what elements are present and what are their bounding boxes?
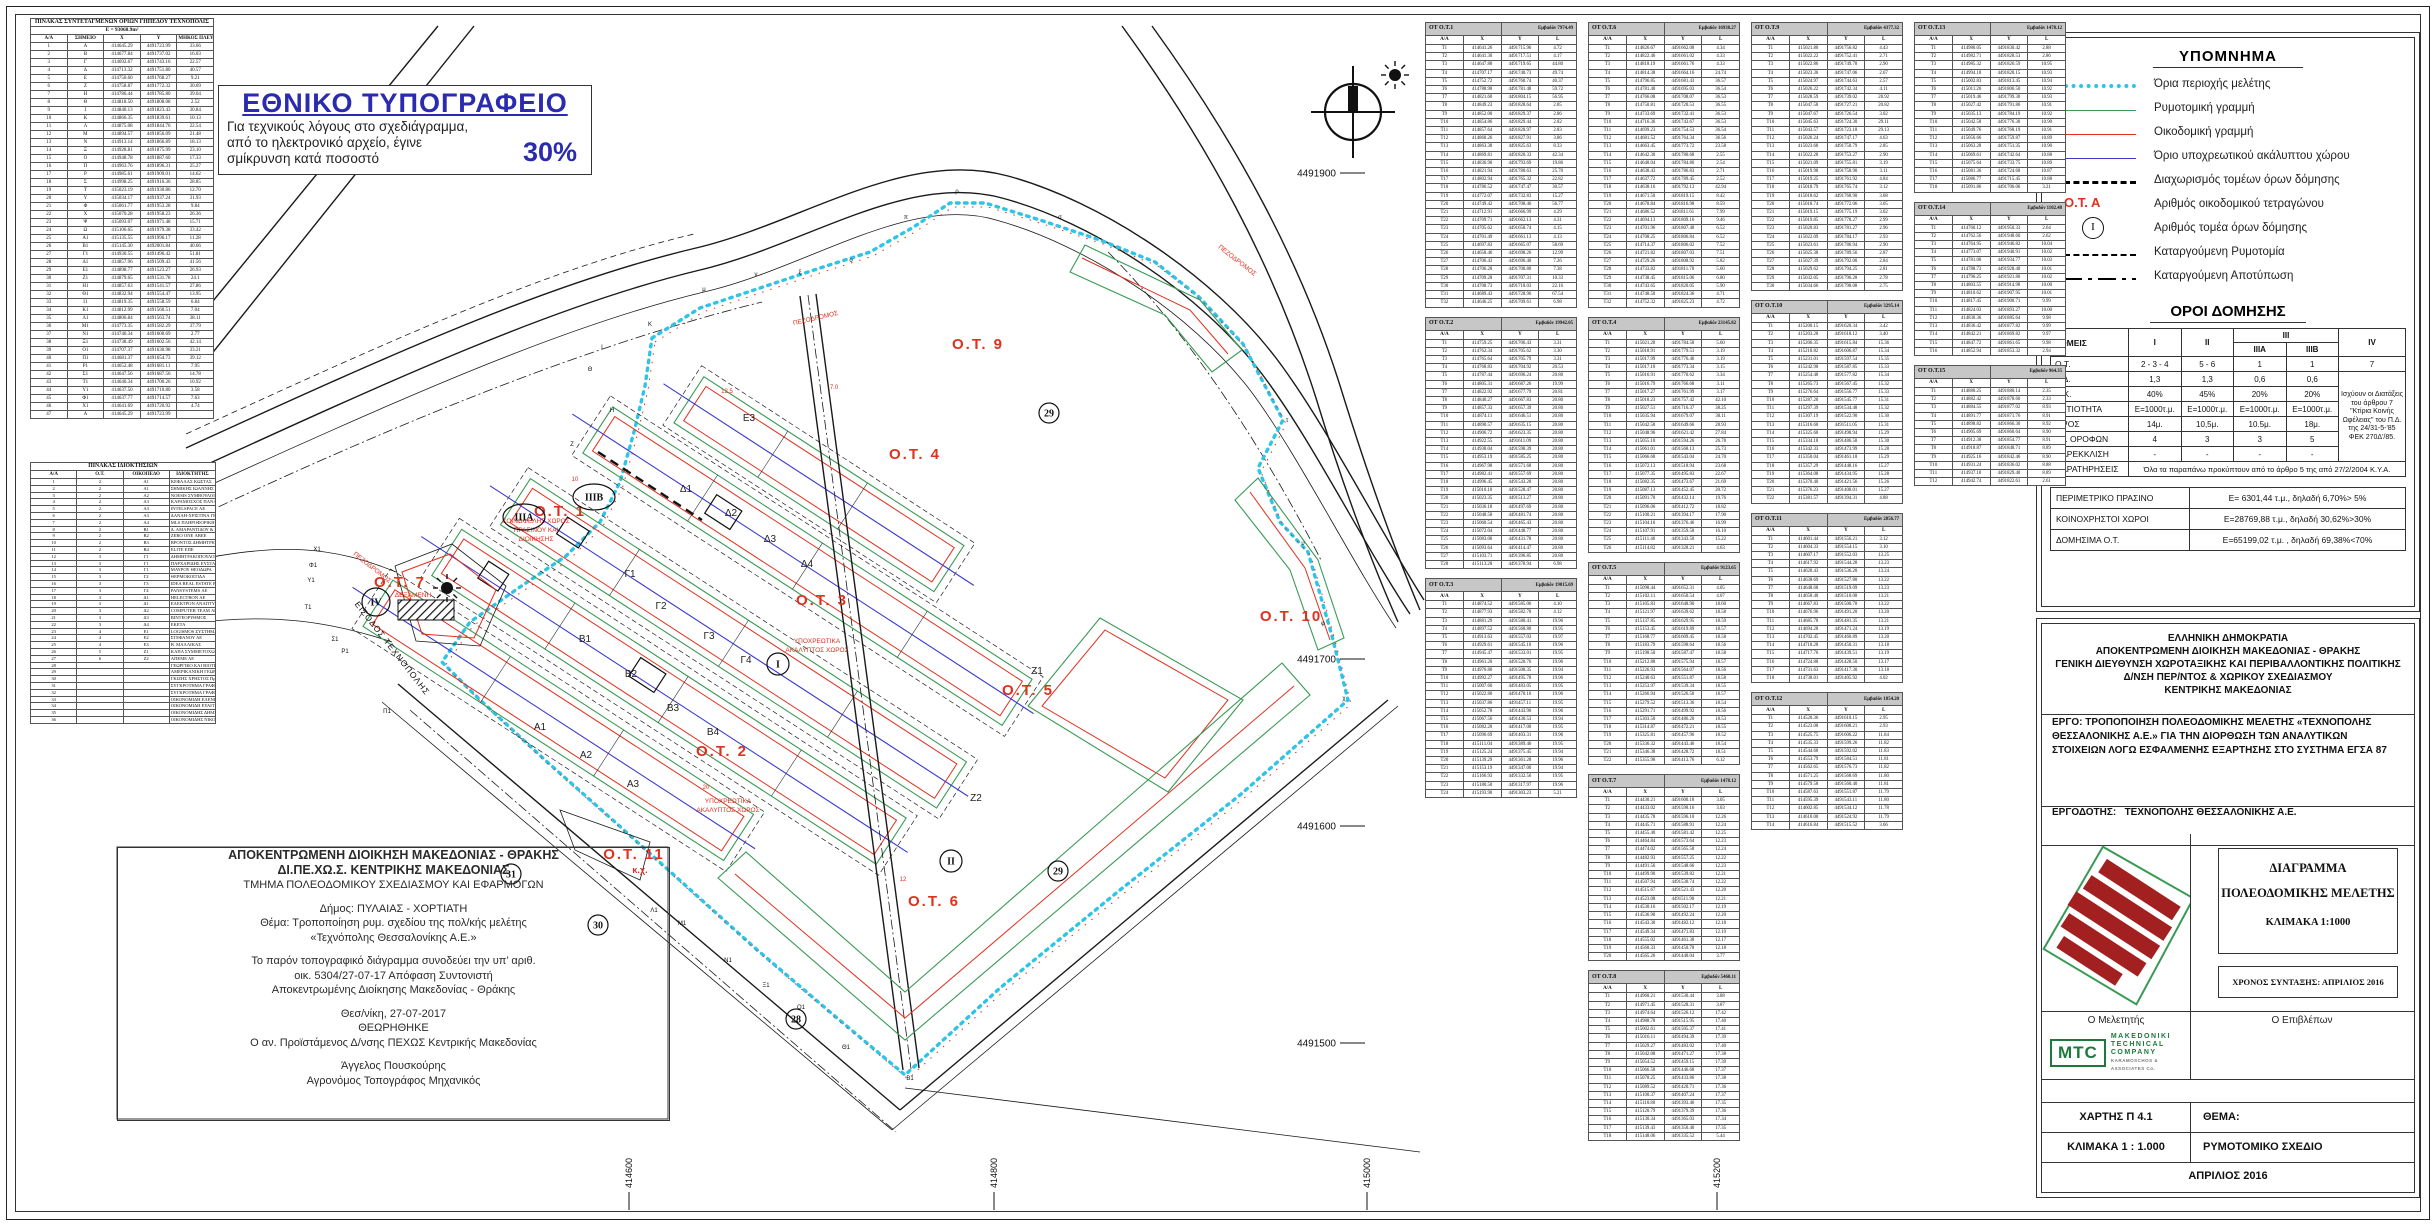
table-row: 2Β414677.844491737.0216.03	[31, 51, 214, 59]
signatures-section: Ο Μελετητής MTC MAKEDONIKI TECHNICAL COM…	[2042, 1011, 2414, 1080]
table-row: 92Β2ZERO ONE ΑΒΕΕ	[31, 533, 216, 540]
stamp-line: «Τεχνόπολης Θεσσαλονίκης Α.Ε.»	[118, 931, 669, 946]
map-label: Δ3	[764, 534, 777, 545]
boundary-coordinates-table: ΠΙΝΑΚΑΣ ΣΥΝΤΕΤΑΓΜΕΝΩΝ ΟΡΙΩΝ ΓΗΠΕΔΟΥ ΤΕΧΝ…	[30, 18, 214, 419]
grid-coordinate-label: 415000	[1362, 1158, 1372, 1188]
map-circle-label: ΙΙΙΒ	[585, 493, 604, 504]
table-row: 40Π1414681.374491654.7339.12	[31, 355, 214, 363]
table-row: 28ΓΕΩΡΓΙΚΟ ΚΑΙ ΒΙΟΤΕΧΝΙΚΟ ΙΝΣΤΙΤΟΥΤΟ ΘΕΣ…	[31, 662, 216, 669]
table-row: 36ΟΙΚΟΝΟΜΙΔΗΣ ΝΙΚΟΛΑΟΣ Γενναδίου 17 Πυλα…	[31, 716, 216, 723]
table-row: 5Ε414750.604491768.279.21	[31, 75, 214, 83]
table-row: ΠΕΡΙΜΕΤΡΙΚΟ ΠΡΑΣΙΝΟΕ= 6301,44 τ.μ., δηλα…	[2051, 488, 2406, 509]
stamp-line: ΔΙ.ΠΕ.ΧΩ.Σ. ΚΕΝΤΡΙΚΗΣ ΜΑΚΕΔΟΝΙΑΣ	[118, 863, 669, 878]
map-label: Β1	[906, 1076, 914, 1082]
map-label: μ	[702, 287, 706, 293]
stamp-line: ΘΕΩΡΗΘΗΚΕ	[118, 1021, 669, 1036]
date-row: ΑΠΡΙΛΙΟΣ 2016	[2042, 1162, 2414, 1190]
table-row: 3Γ414692.674491743.1622.57	[31, 59, 214, 67]
map-label: ΠΕΖΟΔΡΟΜΟΣ	[1217, 244, 1258, 278]
map-label: Α2	[580, 750, 593, 761]
table-row: 43Τ1414640.344491700.2610.92	[31, 379, 214, 387]
legend-item: ΙΑριθμός τομέα όρων δόμησης	[2042, 219, 2414, 243]
map-label: Σ1	[331, 637, 339, 643]
table-row: 12Μ414894.574491856.0921.48	[31, 131, 214, 139]
table-row: 21Φ415061.774491953.289.84	[31, 203, 214, 211]
table-row: 223Δ4ΕΚΕΤΑ	[31, 621, 216, 628]
map-label: Β1	[579, 634, 592, 645]
owners-table-title: ΠΙΝΑΚΑΣ ΙΔΙΟΚΤΗΣΙΩΝ	[31, 463, 216, 471]
map-label: Δ4	[801, 559, 814, 570]
table-row: 29Ε1414898.774491523.2726.93	[31, 267, 214, 275]
table-row: 11Λ414875.084491844.7622.54	[31, 123, 214, 131]
table-row: ΚΟΙΝΟΧΡΗΣΤΟΙ ΧΩΡΟΙΕ=28769,88 τ.μ., δηλαδ…	[2051, 509, 2406, 530]
legend-items: Όρια περιοχής μελέτηςΡυμοτομική γραμμήΟι…	[2042, 75, 2414, 291]
blank-row	[2042, 1079, 2414, 1103]
table-row: 22Χ415070.284491958.2326.36	[31, 211, 214, 219]
table-row: 183Δ1HELECTRON ΑΕ	[31, 594, 216, 601]
table-row: 6Ζ414758.874491772.3230.69	[31, 83, 214, 91]
stamp-line: Θεσ/νίκη, 27-07-2017	[118, 1007, 669, 1022]
map-label: Β4	[707, 727, 720, 738]
grid-coordinate-label: 414800	[989, 1158, 999, 1188]
ot-3-label: Ο.Τ. 3	[796, 592, 848, 609]
stamp-line: Άγγελος Πουσκούρης	[118, 1059, 669, 1074]
ownership-table: ΠΙΝΑΚΑΣ ΙΔΙΟΚΤΗΣΙΩΝ Α/Α Ο.Τ. ΟΙΚΟΠΕΔΟ ΙΔ…	[30, 462, 216, 724]
legend-item: Όριο υποχρεωτικού ακάλυπτου χώρου	[2042, 147, 2414, 171]
map-label: ΚΟΙΝΩΦΕΛΗΣ ΧΩΡΟΣ	[502, 518, 570, 525]
legend-item-label: Όριο υποχρεωτικού ακάλυπτου χώρου	[2154, 150, 2350, 162]
table-row: 102Β3ΒΡΟΝΤΟΣ ΔΗΜΗΤΡΙΟΣ	[31, 540, 216, 547]
main-internal-street	[800, 294, 919, 1070]
map-label: Ε3	[743, 413, 756, 424]
ot-10-label: Ο.Τ. 10	[1260, 608, 1322, 625]
table-row: 153Γ2ΘΕΡΜΟΚΟΙΤΙΔΑ	[31, 574, 216, 581]
map-label: Α3	[627, 779, 640, 790]
legend-item-label: Καταργούμενη Αποτύπωση	[2154, 270, 2293, 282]
table-row: 46Χ1414641.694491720.924.74	[31, 403, 214, 411]
map-label: ΔΙΟΙΚΗΣΗΣ	[519, 536, 554, 543]
legend-item: Καταργούμενη Αποτύπωση	[2042, 267, 2414, 291]
supervisor-cell: Ο Επιβλέπων	[2190, 1011, 2414, 1026]
map-label: Μ1	[678, 921, 687, 927]
map-circle-label: 29	[1053, 867, 1063, 878]
grid-coordinate-label: 4491600	[1297, 822, 1336, 833]
table-row: 27Γ1414930.554491496.4251.81	[31, 251, 214, 259]
building-terms-title: ΟΡΟΙ ΔΟΜΗΣΗΣ	[2042, 303, 2414, 320]
table-row: 35Λ1414806.844491563.7438.11	[31, 315, 214, 323]
table-row: 52Α3INTELSPACE ΑΕ	[31, 506, 216, 513]
dash-symbol-icon	[2064, 254, 2136, 256]
map-circle-label: 28	[791, 1015, 801, 1026]
table-row: 32Θ1414832.944491554.4713.95	[31, 291, 214, 299]
legend-item-label: Αριθμός τομέα όρων δόμησης	[2154, 222, 2307, 234]
table-row: 16Π414963.764491896.3125.27	[31, 163, 214, 171]
title-block-inner: ΕΛΛΗΝΙΚΗ ΔΗΜΟΚΡΑΤΙΑ ΑΠΟΚΕΝΤΡΩΜΕΝΗ ΔΙΟΙΚΗ…	[2041, 623, 2415, 1193]
drawing-sheet: Ο.Τ. 1Ο.Τ. 2Ο.Τ. 3Ο.Τ. 4Ο.Τ. 5Ο.Τ. 6Ο.Τ.…	[0, 0, 2436, 1226]
map-label: Φ1	[309, 563, 318, 569]
national-printing-office-notice: ΕΘΝΙΚΟ ΤΥΠΟΓΡΑΦΕΙΟ Για τεχνικούς λόγους …	[218, 85, 592, 175]
project-title: ΕΡΓΟ: ΤΡΟΠΟΠΟΙΗΣΗ ΠΟΛΕΟΔΟΜΙΚΗΣ ΜΕΛΕΤΗΣ «…	[2042, 706, 2414, 807]
map-label: Ρ1	[341, 649, 349, 655]
notice-line: Για τεχνικούς λόγους στο σχεδιάγραμμα,	[227, 119, 591, 135]
table-row: 19Τ415023.194491930.8612.70	[31, 187, 214, 195]
map-label: Θ	[588, 367, 593, 373]
table-row: 20Υ415034.174491937.2431.93	[31, 195, 214, 203]
supervisor-label: Ο Επιβλέπων	[2190, 1011, 2414, 1026]
table-row: 7Η414786.444491785.8039.04	[31, 91, 214, 99]
table-row: 244Ε2ΣΤΕΦΑΝΟΥ ΑΕ	[31, 635, 216, 642]
table-row: 173Γ4PANSYSTEMS ΑΕ	[31, 587, 216, 594]
ot-5-label: Ο.Τ. 5	[1002, 682, 1054, 699]
table-row: 17Ρ414985.614491909.0114.62	[31, 171, 214, 179]
legend-title: ΥΠΟΜΝΗΜΑ	[2042, 48, 2414, 65]
chart-number: ΧΑΡΤΗΣ Π 4.1	[2042, 1102, 2191, 1132]
map-label: Γ1	[624, 569, 636, 580]
notice-title: ΕΘΝΙΚΟ ΤΥΠΟΓΡΑΦΕΙΟ	[219, 88, 591, 119]
notice-percentage: 30%	[523, 137, 577, 168]
table-row: 47Α414645.294491723.99	[31, 411, 214, 419]
table-row: 1Α414645.294491723.9933.66	[31, 43, 214, 51]
circ-symbol-icon: Ι	[2082, 217, 2104, 239]
map-circle-label: 29	[1044, 409, 1054, 420]
table-row: ΔΟΜΗΣΙΜΑ Ο.Τ.Ε=65199,02 τ.μ. , δηλαδή 69…	[2051, 530, 2406, 551]
table-row: 9Ι414840.134491823.4330.84	[31, 107, 214, 115]
table-row: 38Ξ1414738.494491602.5642.14	[31, 339, 214, 347]
legend-item: Οικοδομική γραμμή	[2042, 123, 2414, 147]
map-label: ΠΕΖΟΔΡΟΜΟΣ	[792, 310, 839, 327]
map-label: Β3	[667, 703, 680, 714]
map-label: Ι	[601, 345, 603, 351]
stamp-line: Αποκεντρωμένης Διοίκησης Μακεδονίας - Θρ…	[118, 983, 669, 998]
building-terms-header: ΤΟΜΕΙΣ Ι ΙΙ ΙΙΙ ΙV	[2051, 329, 2406, 343]
table-row: 24Ω415106.654491979.3833.42	[31, 227, 214, 235]
map-label: Κ	[648, 322, 652, 328]
site-thumbnail-cell	[2042, 834, 2191, 1011]
map-label: 12.5	[721, 389, 733, 395]
table-row: 34Κ1414812.994491560.517.04	[31, 307, 214, 315]
stamp-line: ΑΠΟΚΕΝΤΡΩΜΕΝΗ ΔΙΟΙΚΗΣΗ ΜΑΚΕΔΟΝΙΑΣ - ΘΡΑΚ…	[118, 848, 669, 863]
table-row: 193Δ1ΕΛΕΚΤΡΟΝ ΑΝΑΠΤΥΞΙΑΚΗ ΑΕ	[31, 601, 216, 608]
table-row: 82Β1Δ. ΑΜΑΡΑΝΤΙΔΟΥ & ΣΙΑ ΕΕ	[31, 526, 216, 533]
table-row: 14Ξ414928.814491875.9923.10	[31, 147, 214, 155]
approval-stamp: ΑΠΟΚΕΝΤΡΩΜΕΝΗ ΔΙΟΙΚΗΣΗ ΜΑΚΕΔΟΝΙΑΣ - ΘΡΑΚ…	[117, 847, 670, 1121]
stamp-line	[118, 1050, 669, 1059]
map-label: Α1	[534, 722, 547, 733]
table-row: 23Ψ415093.074491971.4815.71	[31, 219, 214, 227]
table-row: 276Ζ2ΑΠΕΜΕ ΑΕ	[31, 655, 216, 662]
table-row: 13Ν414913.144491866.8918.13	[31, 139, 214, 147]
block-ot6	[718, 663, 1310, 1040]
map-label: φ	[1321, 621, 1325, 627]
map-label: Γ4	[740, 655, 752, 666]
map-label: Π1	[383, 709, 391, 715]
map-label: Υ1	[307, 578, 315, 584]
table-row: 123Γ1ΔΗΜΗΤΡΑΚΟΠΟΥΛΟΣ ΚΩΝ/ΝΟΣ	[31, 553, 216, 560]
table-row: 26Β1415145.304492001.8440.66	[31, 243, 214, 251]
stamp-line: Ο αν. Προϊστάμενος Δ/νσης ΠΕΧΩΣ Κεντρική…	[118, 1036, 669, 1051]
map-label: 20	[703, 785, 710, 791]
legend-item: Καταργούμενη Ρυμοτομία	[2042, 243, 2414, 267]
agency-header: ΕΛΛΗΝΙΚΗ ΔΗΜΟΚΡΑΤΙΑ ΑΠΟΚΕΝΤΡΩΜΕΝΗ ΔΙΟΙΚΗ…	[2042, 624, 2414, 715]
table-row: 33ΟΙΚΟΝΟΜΙΔΗ ΕΛΕΝΗ Γενναδίου 17 Πυλαία	[31, 696, 216, 703]
table-row: 22Α1ΣΗΜΙΚΗΣ ΙΩΑΝΝΗΣ	[31, 485, 216, 492]
table-row: 41Ρ1414652.484491681.117.95	[31, 363, 214, 371]
map-label: Τ1	[304, 605, 312, 611]
table-row: 203Δ2COMPUTER TEAM ΑΕΒΕ	[31, 608, 216, 615]
map-label: Ζ1	[1031, 666, 1043, 677]
legend-panel-inner: ΥΠΟΜΝΗΜΑ Όρια περιοχής μελέτηςΡυμοτομική…	[2041, 37, 2415, 607]
table-row: 30Ζ1414879.654491531.7824.1	[31, 275, 214, 283]
coords-table-area: Ε = 93068.9m²	[31, 27, 214, 35]
table-row: 265Ζ1ΚΑΠΑ ΣΥΜΜΕΤΟΧΩΝ ΑΕ	[31, 648, 216, 655]
table-row: Σ.Δ.1,31,30,60,6Ισχύουν οι Διατάξεις του…	[2051, 372, 2406, 387]
map-label: ΑΚΑΛΥΠΤΟΣ ΧΩΡΟΣ	[785, 647, 848, 654]
table-row: 62Α3ΔΑΝΑΗ-ΧΡΙΣΤΙΝΑ ΓΕΩΡΓΟΠΟΥΛΟΥ	[31, 512, 216, 519]
area-totals-table: ΠΕΡΙΜΕΤΡΙΚΟ ΠΡΑΣΙΝΟΕ= 6301,44 τ.μ., δηλα…	[2050, 487, 2406, 551]
map-label: Γ2	[655, 601, 667, 612]
map-label: ν	[755, 272, 758, 278]
stamp-line	[118, 998, 669, 1007]
map-label: Χ1	[313, 547, 321, 553]
map-label: Ζ	[570, 442, 574, 448]
ot-6-label: Ο.Τ. 6	[908, 893, 960, 910]
legend-item-label: Οικοδομική γραμμή	[2154, 126, 2253, 138]
map-label: υ	[1301, 541, 1304, 547]
map-label: Θ1	[842, 1045, 851, 1051]
table-row: 45Φ1414637.774491714.577.63	[31, 395, 214, 403]
block-ot5	[1028, 618, 1243, 792]
table-row: 42Α3ΚΑΡΑΜΟΣΧΟΣ ΠΑΝΑΓΙΩΤΗΣ	[31, 499, 216, 506]
table-row: 39Ο1414707.374491630.9833.21	[31, 347, 214, 355]
grid-coordinate-label: 414600	[624, 1158, 634, 1188]
coords-table-title: ΠΙΝΑΚΑΣ ΣΥΝΤΕΤΑΓΜΕΝΩΝ ΟΡΙΩΝ ΓΗΠΕΔΟΥ ΤΕΧΝ…	[31, 19, 214, 27]
red-symbol-icon	[2064, 134, 2136, 135]
stamp-line: Το παρόν τοπογραφικό διάγραμμα συνοδεύει…	[118, 954, 669, 969]
stamp-line: οικ. 5304/27-07-17 Απόφαση Συντονιστή	[118, 969, 669, 984]
map-label: Ξ1	[762, 983, 770, 989]
table-row: 29ΑΜΕΡΙΚΑΝΙΚΗ ΓΕΩΡΓΙΚΗ ΣΧΟΛΗ	[31, 669, 216, 676]
sector-symbol-icon	[2064, 181, 2136, 184]
table-row: ΠΑΡΑΤΗΡΗΣΕΙΣΌλα τα παραπάνω προκύπτουν α…	[2051, 462, 2406, 477]
title-block: ΕΛΛΗΝΙΚΗ ΔΗΜΟΚΡΑΤΙΑ ΑΠΟΚΕΝΤΡΩΜΕΝΗ ΔΙΟΙΚΗ…	[2036, 618, 2420, 1198]
map-label: Δ1	[680, 484, 693, 495]
map-label: ΥΠΟΧΡΕΩΤΙΚΑ	[705, 798, 752, 805]
boundary-symbol-icon	[2064, 84, 2136, 88]
stamp-line: Αγρονόμος Τοπογράφος Μηχανικός	[118, 1074, 669, 1089]
ot-4-label: Ο.Τ. 4	[889, 446, 941, 463]
project-label: ΕΡΓΟ:	[2052, 717, 2082, 728]
table-row: 8Θ414818.504491808.082.52	[31, 99, 214, 107]
legend-item-label: Καταργούμενη Ρυμοτομία	[2154, 246, 2285, 258]
map-circle-label: ΙΙΙΑ	[515, 513, 535, 524]
map-label: 10	[572, 477, 579, 483]
table-row: 30ΓΚΙΖΗΣ ΧΡΗΣΤΟΣ Προσοτσάνης 11 Πυλαία Γ…	[31, 676, 216, 683]
map-label: ΔΕΞΑΜΕΝΗ	[395, 592, 432, 599]
owners-table-header: Α/Α Ο.Τ. ΟΙΚΟΠΕΔΟ ΙΔΙΟΚΤΗΤΗΣ	[31, 471, 216, 479]
thema-value: ΡΥΜΟΤΟΜΙΚΟ ΣΧΕΔΙΟ	[2191, 1132, 2414, 1162]
map-circle-label: Ι	[776, 660, 780, 671]
mtc-abbr: MTC	[2050, 1039, 2106, 1067]
date-value: ΑΠΡΙΛΙΟΣ 2016	[2042, 1162, 2414, 1190]
legend-item-label: Διαχωρισμός τομέων όρων δόμησης	[2154, 174, 2340, 186]
legend-item-label: Αριθμός οικοδομικού τετραγώνου	[2154, 198, 2324, 210]
map-label: Γ3	[703, 631, 715, 642]
table-row: 44Υ1414637.504491710.803.58	[31, 387, 214, 395]
map-label: ΑΚΑΛΥΠΤΟΣ ΧΩΡΟΣ	[696, 807, 759, 814]
diagram-title-box: ΔΙΑΓΡΑΜΜΑ ΠΟΛΕΟΔΟΜΙΚΗΣ ΜΕΛΕΤΗΣ ΚΛΙΜΑΚΑ 1…	[2218, 848, 2398, 954]
grid-coordinate-label: 4491500	[1297, 1039, 1336, 1050]
legend-panel: ΥΠΟΜΝΗΜΑ Όρια περιοχής μελέτηςΡυμοτομική…	[2036, 32, 2420, 612]
table-row: 31ΣΥΓΚΡΟΤΗΜΑ ΓΡΑΦΕΙΩΝ 9ο χλμ Θεσ/νίκης-Θ…	[31, 682, 216, 689]
table-row: 33Ι1414819.354491558.596.84	[31, 299, 214, 307]
blue-symbol-icon	[2064, 158, 2136, 159]
chart-number-row: ΧΑΡΤΗΣ Π 4.1 ΘΕΜΑ:	[2042, 1102, 2414, 1133]
table-row: 31Η1414857.634491541.5727.86	[31, 283, 214, 291]
table-row: 18Σ414998.254491916.3628.85	[31, 179, 214, 187]
ot-9-label: Ο.Τ. 9	[952, 336, 1004, 353]
diagram-section: ΔΙΑΓΡΑΜΜΑ ΠΟΛΕΟΔΟΜΙΚΗΣ ΜΕΛΕΤΗΣ ΚΛΙΜΑΚΑ 1…	[2042, 834, 2414, 1012]
table-row: 25Α1415135.554491996.1711.28	[31, 235, 214, 243]
map-label: ΥΠΟΧΡΕΩΤΙΚΑ	[794, 638, 841, 645]
table-row: 35ΟΙΚΟΝΟΜΙΔΗΣ ΔΗΜΗΤΡΙΟΣ Γενναδίου 17 Πυλ…	[31, 710, 216, 717]
dashdot-symbol-icon	[2064, 278, 2136, 280]
grid-coordinate-label: 4491700	[1297, 655, 1336, 666]
stamp-line	[118, 893, 669, 902]
designer-cell: Ο Μελετητής MTC MAKEDONIKI TECHNICAL COM…	[2042, 1011, 2191, 1079]
client-label: ΕΡΓΟΔΟΤΗΣ:	[2052, 807, 2116, 818]
map-label: 7.0	[830, 385, 839, 391]
table-row: 12Α1ΚΕΦΑΛΑΣ ΚΩΣΤΑΣ	[31, 479, 216, 486]
legend-item: Ρυμοτομική γραμμή	[2042, 99, 2414, 123]
legend-item-label: Ρυμοτομική γραμμή	[2154, 102, 2255, 114]
table-row: 4Δ414713.324491751.8040.57	[31, 67, 214, 75]
map-label: Η	[610, 408, 614, 414]
legend-item: Διαχωρισμός τομέων όρων δόμησης	[2042, 171, 2414, 195]
legend-item: Όρια περιοχής μελέτης	[2042, 75, 2414, 99]
north-compass-icon	[1311, 66, 1395, 158]
notice-line: σμίκρυνση κατά ποσοστό	[227, 151, 457, 167]
legend-item-label: Όρια περιοχής μελέτης	[2154, 78, 2270, 90]
scale-value: ΚΛΙΜΑΚΑ 1 : 1.000	[2042, 1132, 2191, 1162]
table-row: 32ΣΥΓΚΡΟΤΗΜΑ ΓΡΑΦΕΙΩΝ "THERMI" 9ο χλμ Θε…	[31, 689, 216, 696]
thema-label: ΘΕΜΑ:	[2191, 1102, 2414, 1132]
drafting-date-box: ΧΡΟΝΟΣ ΣΥΝΤΑΞΗΣ: ΑΠΡΙΛΙΟΣ 2016	[2218, 966, 2398, 998]
map-label: ξ	[799, 270, 802, 276]
map-label: Β2	[625, 669, 638, 680]
map-label: ρ	[955, 189, 959, 195]
ot-symbol-icon: Ο.Τ. Α	[2064, 195, 2136, 203]
table-row: 133Γ1ΠΑΡΧΑΡΙΔΗΣ ΕΥΣΤΑΘΙΟΣ	[31, 560, 216, 567]
table-row: 42Σ1414647.564491687.5614.78	[31, 371, 214, 379]
grid-coordinate-label: 4491900	[1297, 169, 1336, 180]
table-row: 10Κ414866.354491839.6110.13	[31, 115, 214, 123]
table-row: 28Δ1414857.964491509.4341.56	[31, 259, 214, 267]
legend-item: Ο.Τ. ΑΑριθμός οικοδομικού τετραγώνου	[2042, 195, 2414, 219]
map-label: Ν1	[724, 958, 732, 964]
coords-table-header: Α/Α ΣΗΜΕΙΟ Χ Υ ΜΗΚΟΣ ΠΛΕΥΡΑΣ (m)	[31, 35, 214, 43]
table-row: 254Ε3Β. ΜΑΛΛΙΚΑΣ	[31, 642, 216, 649]
map-label: τ	[1286, 418, 1289, 424]
stamp-line: ΤΜΗΜΑ ΠΟΛΕΟΔΟΜΙΚΟΥ ΣΧΕΔΙΑΣΜΟΥ ΚΑΙ ΕΦΑΡΜΟ…	[118, 878, 669, 893]
table-row: 36Μ1414773.354491582.2937.79	[31, 323, 214, 331]
table-row: 234Ε1LOGISMOS ΣΥΣΤΗΜΑΤΑ ΠΛΗΡΟΦΟΡΙΚΗΣ ΑΕ	[31, 628, 216, 635]
designer-label: Ο Μελετητής	[2042, 1011, 2190, 1026]
table-row: 213Δ3ΒΙΝΤΕΟΡΥΘΜΟΣ	[31, 614, 216, 621]
table-row: 37Ν1414740.344491600.692.77	[31, 331, 214, 339]
project-text: ΤΡΟΠΟΠΟΙΗΣΗ ΠΟΛΕΟΔΟΜΙΚΗΣ ΜΕΛΕΤΗΣ «ΤΕΧΝΟΠ…	[2052, 717, 2387, 756]
table-row: 112Β4ELITE ΕΠΕ	[31, 546, 216, 553]
tank-hatch	[398, 600, 454, 620]
table-row: 72Α4MLS ΠΛΗΡΟΦΟΡΙΚΗ ΑΕ	[31, 519, 216, 526]
ot-2-label: Ο.Τ. 2	[696, 743, 748, 760]
map-label: Ζ2	[970, 793, 982, 804]
table-row: 32Α2NOESIS ΣΥΜΒΟΥΛΟΙ ΑΝΑΠΤΥΞΗΣ ΑΕ	[31, 492, 216, 499]
mtc-logo: MTC MAKEDONIKI TECHNICAL COMPANY KARAMOS…	[2050, 1033, 2190, 1073]
map-label: Δ2	[725, 508, 738, 519]
stamp-line	[118, 945, 669, 954]
map-label: σ	[1058, 215, 1062, 221]
map-label: 12	[900, 877, 907, 883]
map-circle-label: ΙV	[370, 598, 382, 609]
stamp-line: Δήμος: ΠΥΛΑΙΑΣ - ΧΟΡΤΙΑΤΗ	[118, 902, 669, 917]
site-thumbnail-logo	[2042, 834, 2190, 1011]
building-terms-table: ΤΟΜΕΙΣ Ι ΙΙ ΙΙΙ ΙV ΙΙΙΑΙΙΙΒ Ο.Τ.2 - 3 - …	[2050, 328, 2406, 477]
map-label: π	[904, 215, 908, 221]
table-row: 163Γ3IDEA REAL ESTATE ΕΠΕ	[31, 580, 216, 587]
map-label: χ	[1342, 696, 1346, 702]
map-circle-label: ΙΙ	[947, 857, 955, 868]
table-row: 15Ο414948.784491887.6017.33	[31, 155, 214, 163]
table-row: Ο.Τ.2 - 3 - 45 - 6117	[2051, 357, 2406, 372]
green-symbol-icon	[2064, 110, 2136, 111]
table-row: 143Γ1ΜΑΥΡΟΥ ΘΕΟΔΩΡΑ	[31, 567, 216, 574]
table-row: 34ΟΙΚΟΝΟΜΙΔΗ ΕΥΑΓΓΕΛΙΑ Γενναδίου 17 Πυλα…	[31, 703, 216, 710]
client-name: ΤΕΧΝΟΠΟΛΗΣ ΘΕΣΣΑΛΟΝΙΚΗΣ Α.Ε.	[2125, 807, 2297, 818]
grid-coordinate-label: 415200	[1712, 1158, 1722, 1188]
scale-row: ΚΛΙΜΑΚΑ 1 : 1.000 ΡΥΜΟΤΟΜΙΚΟ ΣΧΕΔΙΟ	[2042, 1132, 2414, 1163]
stamp-line: Θέμα: Τροποποίηση ρυμ. σχεδίου της πολ/κ…	[118, 916, 669, 931]
